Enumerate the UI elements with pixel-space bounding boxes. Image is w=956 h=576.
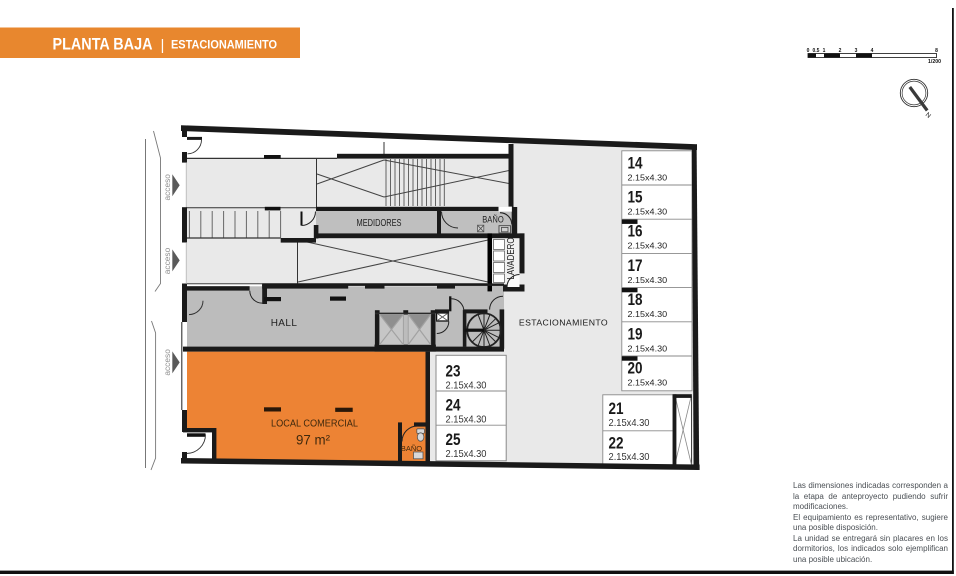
svg-text:3: 3 — [855, 48, 858, 54]
svg-text:2.15x4.30: 2.15x4.30 — [628, 241, 668, 251]
svg-text:2: 2 — [839, 48, 842, 54]
svg-text:8: 8 — [935, 48, 938, 54]
svg-text:16: 16 — [628, 223, 643, 241]
svg-text:2.15x4.30: 2.15x4.30 — [628, 343, 668, 353]
svg-text:LAVADERO: LAVADERO — [505, 238, 517, 280]
svg-text:14: 14 — [628, 154, 644, 172]
svg-text:20: 20 — [628, 360, 643, 378]
svg-text:2.15x4.30: 2.15x4.30 — [628, 275, 668, 285]
svg-text:2.15x4.30: 2.15x4.30 — [446, 381, 487, 392]
svg-text:2.15x4.30: 2.15x4.30 — [628, 309, 668, 319]
svg-text:24: 24 — [446, 396, 461, 415]
svg-text:2.15x4.30: 2.15x4.30 — [609, 418, 650, 429]
svg-text:PLANTA BAJA: PLANTA BAJA — [53, 35, 153, 54]
svg-text:2.15x4.30: 2.15x4.30 — [446, 449, 487, 460]
svg-text:acceso: acceso — [163, 174, 172, 201]
svg-text:2.15x4.30: 2.15x4.30 — [446, 414, 487, 425]
svg-text:18: 18 — [628, 291, 643, 309]
svg-text:N: N — [924, 111, 932, 120]
svg-text:MEDIDORES: MEDIDORES — [357, 218, 402, 229]
svg-text:HALL: HALL — [271, 318, 298, 329]
svg-text:4: 4 — [871, 48, 874, 54]
svg-text:25: 25 — [446, 430, 461, 449]
svg-text:15: 15 — [628, 189, 643, 207]
svg-text:2.15x4.30: 2.15x4.30 — [628, 207, 668, 217]
svg-text:BAÑO: BAÑO — [482, 215, 504, 225]
svg-text:|: | — [161, 37, 165, 54]
svg-text:ESTACIONAMIENTO: ESTACIONAMIENTO — [519, 317, 608, 327]
svg-text:ESTACIONAMIENTO: ESTACIONAMIENTO — [171, 38, 277, 52]
svg-text:1: 1 — [823, 48, 826, 54]
svg-text:0: 0 — [807, 48, 810, 54]
svg-text:19: 19 — [628, 325, 643, 343]
svg-text:97 m²: 97 m² — [296, 433, 330, 448]
svg-text:21: 21 — [609, 399, 624, 418]
svg-text:2.15x4.30: 2.15x4.30 — [628, 378, 668, 388]
svg-text:22: 22 — [609, 433, 624, 452]
svg-text:acceso: acceso — [163, 349, 172, 376]
svg-text:acceso: acceso — [163, 247, 172, 274]
svg-text:23: 23 — [446, 362, 461, 381]
svg-text:LOCAL COMERCIAL: LOCAL COMERCIAL — [271, 418, 358, 430]
svg-text:17: 17 — [628, 257, 643, 275]
svg-text:2.15x4.30: 2.15x4.30 — [609, 452, 650, 463]
svg-text:2.15x4.30: 2.15x4.30 — [628, 172, 668, 182]
svg-text:0.5: 0.5 — [813, 48, 820, 54]
svg-text:1/200: 1/200 — [928, 59, 941, 65]
